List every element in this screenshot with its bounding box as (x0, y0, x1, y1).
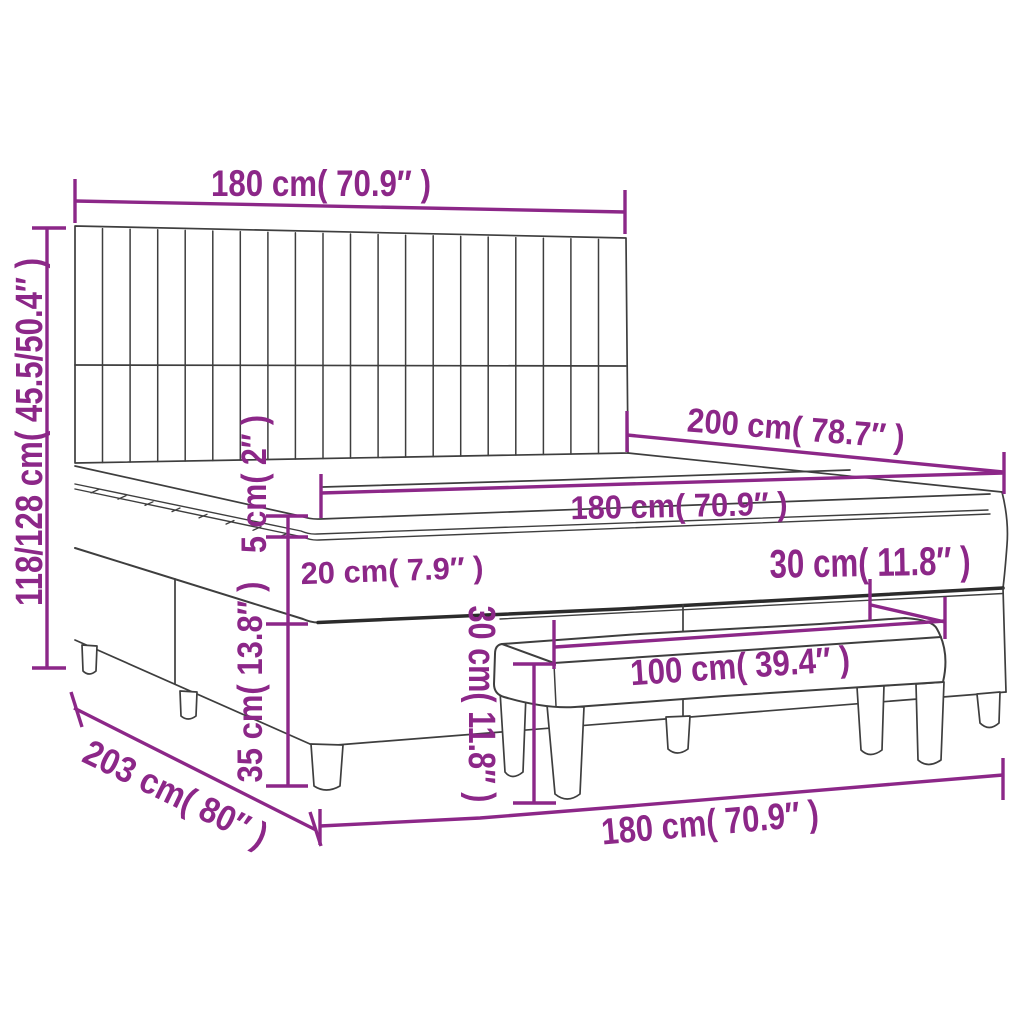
svg-text:180 cm( 70.9″ ): 180 cm( 70.9″ ) (211, 163, 431, 204)
svg-text:20 cm( 7.9″ ): 20 cm( 7.9″ ) (300, 550, 484, 591)
svg-text:30 cm( 11.8″ ): 30 cm( 11.8″ ) (460, 606, 502, 803)
svg-text:118/128 cm( 45.5/50.4″ ): 118/128 cm( 45.5/50.4″ ) (9, 258, 51, 606)
svg-text:5 cm( 2″ ): 5 cm( 2″ ) (235, 415, 274, 553)
svg-text:30 cm( 11.8″ ): 30 cm( 11.8″ ) (769, 539, 971, 587)
svg-text:35 cm( 13.8″ ): 35 cm( 13.8″ ) (231, 582, 270, 783)
svg-text:180 cm( 70.9″ ): 180 cm( 70.9″ ) (570, 485, 788, 527)
